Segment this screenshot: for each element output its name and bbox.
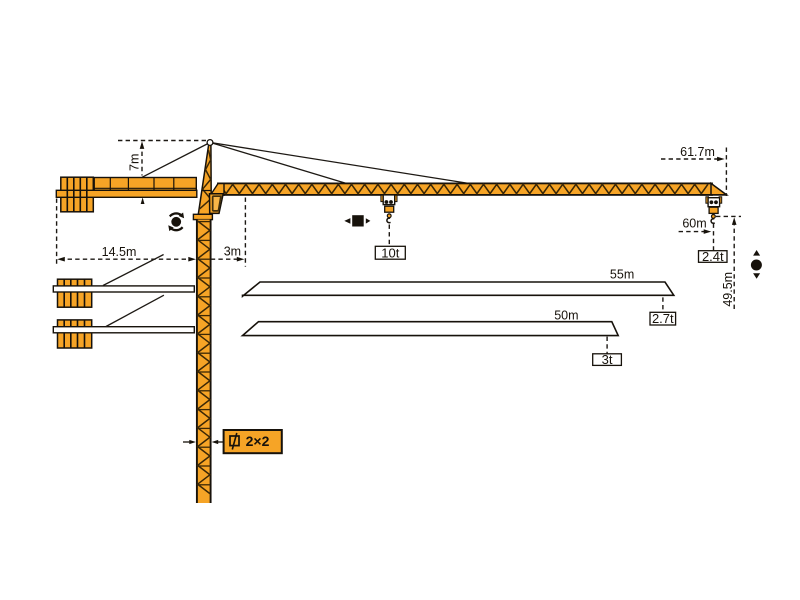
svg-text:2.4t: 2.4t [702,249,724,264]
svg-text:2.7t: 2.7t [652,311,674,326]
svg-text:49.5m: 49.5m [721,272,735,307]
svg-text:50m: 50m [554,309,578,323]
svg-text:60m: 60m [682,216,706,230]
svg-text:3m: 3m [224,245,241,259]
svg-text:10t: 10t [381,245,399,260]
svg-text:14.5m: 14.5m [102,245,137,259]
svg-text:2×2: 2×2 [246,433,270,449]
svg-text:61.7m: 61.7m [680,145,715,159]
svg-text:7m: 7m [127,154,141,171]
svg-text:3t: 3t [602,352,613,367]
svg-text:55m: 55m [610,267,634,281]
